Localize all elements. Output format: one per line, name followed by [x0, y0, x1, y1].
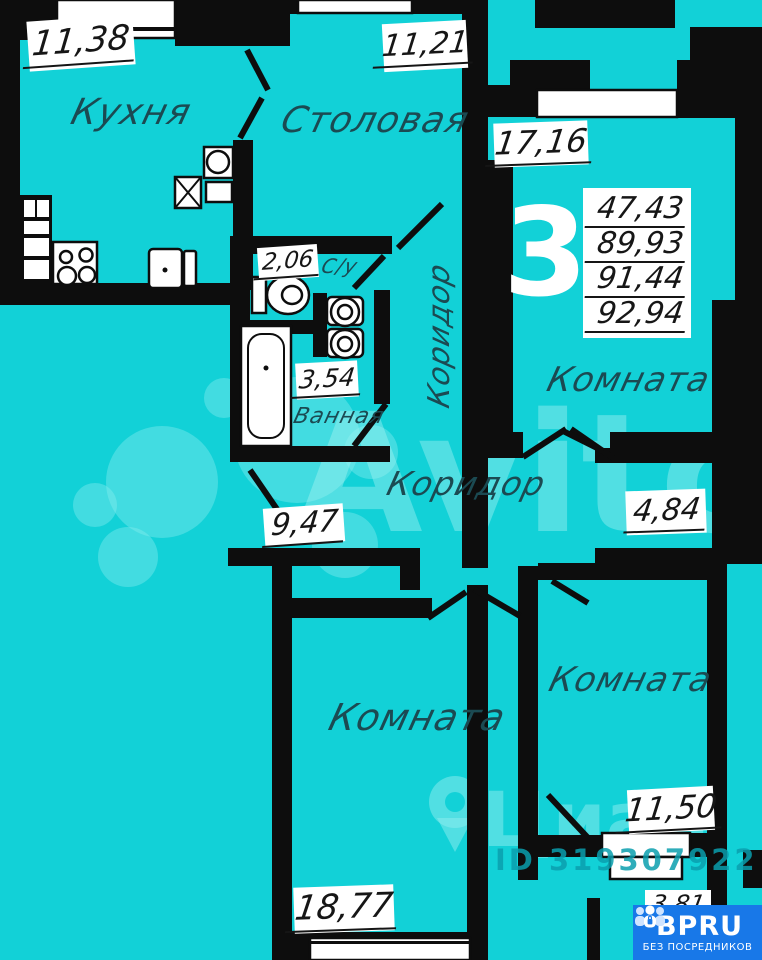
dining-area-label: 11,21: [382, 20, 468, 72]
room3-area-label: 11,50: [627, 786, 715, 834]
toilet: [252, 276, 309, 314]
wc-name: С/у: [319, 254, 361, 278]
bpru-tagline: БЕЗ ПОСРЕДНИКОВ: [643, 942, 753, 953]
bath-name: Ванная: [291, 404, 387, 429]
dining-corridor-door: [398, 204, 442, 248]
rooms-count: 3: [503, 192, 588, 314]
kitchen-name: Кухня: [67, 92, 196, 133]
room2-area-label: 18,77: [293, 884, 395, 933]
room1-name: Комната: [543, 360, 714, 400]
corridor-name: Коридор: [383, 464, 550, 503]
room2-door: [428, 592, 466, 618]
kitchen-dining-door: [247, 50, 268, 90]
floor-plan: Avito Циан: [0, 0, 762, 960]
id-watermark: ID 319307922: [495, 843, 758, 877]
wc-area-label: 2,06: [257, 244, 319, 281]
stove: [53, 242, 97, 285]
room1-area-label: 17,16: [493, 120, 588, 167]
dining-name: Столовая: [277, 100, 473, 141]
bpru-brand-text: BPRU: [656, 913, 743, 940]
bpru-logo: BPRU БЕЗ ПОСРЕДНИКОВ: [633, 905, 762, 960]
kitchen-basin: [204, 147, 233, 202]
kitchen-area-label: 11,38: [26, 14, 135, 71]
washing-machine: [175, 177, 201, 208]
dining-window: [298, 0, 412, 13]
room2-name: Комната: [325, 696, 511, 739]
kitchen-fixtures: [20, 147, 233, 288]
hall-area-label: 9,47: [263, 503, 345, 546]
double-sink: [313, 293, 363, 358]
niche-area-label: 4,84: [625, 489, 706, 536]
room1-window: [537, 90, 677, 117]
corridor-vertical-name: Коридор: [422, 259, 457, 411]
bath-area-label: 3,54: [295, 360, 359, 399]
area-totals: 47,43 89,93 91,44 92,94: [583, 188, 691, 338]
room3-name: Комната: [545, 660, 716, 700]
kitchen-sink: [149, 249, 196, 288]
room1-double-door: [523, 429, 566, 457]
room3-balcony-door: [548, 795, 590, 840]
windows: [57, 0, 690, 960]
bathtub: [241, 326, 291, 446]
